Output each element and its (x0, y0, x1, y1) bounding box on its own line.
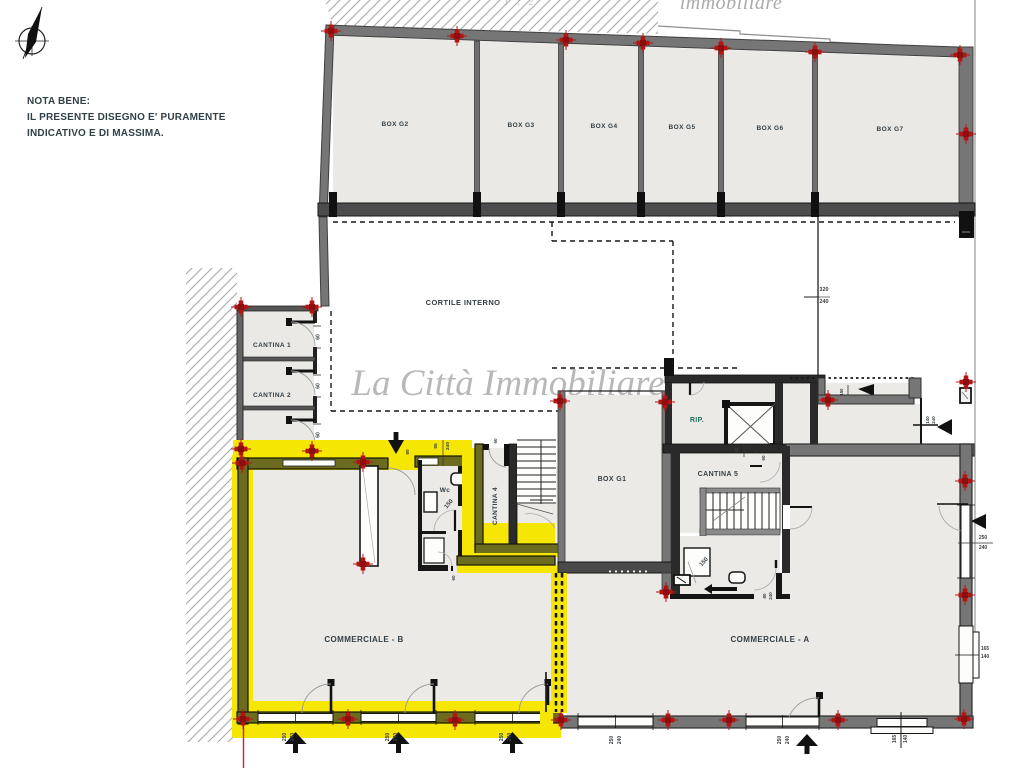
svg-text:60: 60 (734, 447, 739, 452)
svg-text:140: 140 (981, 654, 990, 660)
svg-text:80: 80 (405, 449, 411, 455)
svg-text:COMMERCIALE - B: COMMERCIALE - B (324, 635, 403, 644)
svg-text:60: 60 (316, 383, 322, 389)
svg-text:240: 240 (785, 736, 791, 745)
svg-text:250: 250 (777, 736, 783, 745)
svg-text:80: 80 (762, 593, 767, 599)
svg-text:RIP.: RIP. (690, 417, 704, 424)
svg-text:COMMERCIALE - A: COMMERCIALE - A (730, 635, 809, 644)
svg-text:165: 165 (981, 646, 990, 652)
svg-text:240: 240 (617, 736, 623, 745)
svg-text:INDICATIVO E DI MASSIMA.: INDICATIVO E DI MASSIMA. (27, 128, 164, 139)
svg-text:BOX G4: BOX G4 (591, 123, 618, 130)
svg-text:60: 60 (493, 438, 498, 444)
svg-text:IL PRESENTE DISEGNO E' PURAMEN: IL PRESENTE DISEGNO E' PURAMENTE (27, 112, 226, 123)
svg-text:BOX G6: BOX G6 (757, 125, 784, 132)
svg-text:CORTILE INTERNO: CORTILE INTERNO (426, 298, 501, 307)
svg-text:60: 60 (316, 334, 322, 340)
svg-text:240: 240 (393, 733, 399, 742)
svg-text:85: 85 (433, 443, 439, 449)
svg-text:165: 165 (892, 735, 898, 744)
svg-text:240: 240 (931, 416, 936, 424)
svg-text:60: 60 (451, 575, 456, 581)
svg-text:BOX G7: BOX G7 (877, 126, 904, 133)
svg-text:60: 60 (761, 455, 766, 461)
svg-text:BOX G3: BOX G3 (508, 122, 535, 129)
svg-text:60: 60 (316, 432, 322, 438)
svg-text:CANTINA 2: CANTINA 2 (253, 392, 291, 399)
svg-text:CANTINA 1: CANTINA 1 (253, 342, 291, 349)
svg-text:240: 240 (445, 442, 451, 450)
svg-text:250: 250 (385, 733, 391, 742)
svg-text:NOTA BENE:: NOTA BENE: (27, 96, 90, 107)
svg-text:240: 240 (507, 733, 513, 742)
svg-text:250: 250 (282, 733, 288, 742)
svg-text:BOX G5: BOX G5 (669, 124, 696, 131)
svg-text:immobiliare: immobiliare (680, 0, 783, 14)
svg-text:240: 240 (768, 592, 773, 600)
svg-text:250: 250 (979, 535, 988, 541)
svg-text:150: 150 (839, 388, 844, 396)
svg-text:140: 140 (925, 416, 930, 424)
svg-text:240: 240 (979, 545, 988, 551)
svg-text:240: 240 (290, 733, 296, 742)
svg-text:240: 240 (819, 299, 828, 305)
svg-text:250: 250 (609, 736, 615, 745)
svg-text:320: 320 (819, 287, 828, 293)
svg-text:BOX G1: BOX G1 (598, 476, 627, 483)
svg-text:CANTINA 5: CANTINA 5 (698, 471, 739, 478)
svg-text:Wc: Wc (440, 487, 451, 494)
svg-text:250: 250 (499, 733, 505, 742)
svg-text:CANTINA 4: CANTINA 4 (492, 487, 499, 525)
svg-text:BOX G2: BOX G2 (382, 121, 409, 128)
svg-text:140: 140 (903, 735, 909, 744)
